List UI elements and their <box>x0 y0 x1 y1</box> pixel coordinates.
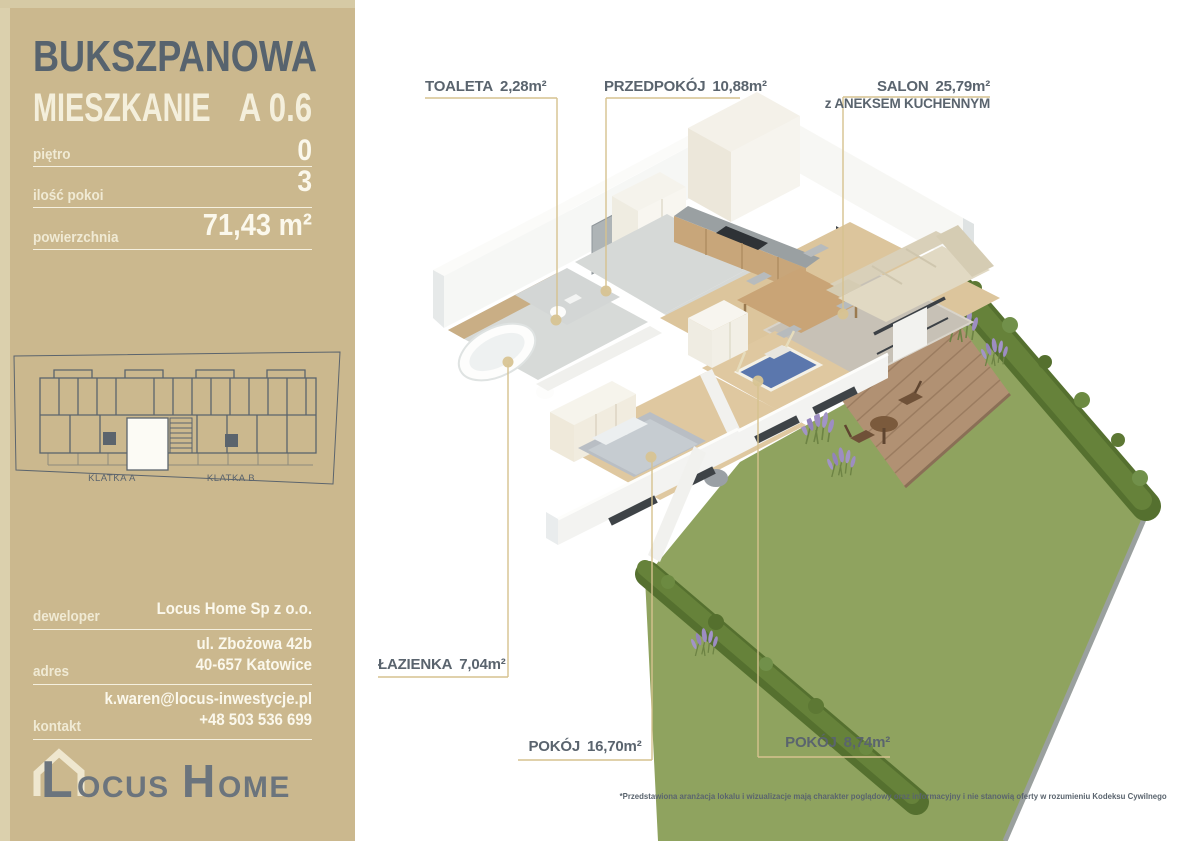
leader-toaleta <box>425 98 557 318</box>
room-area: 16,70m² <box>587 738 641 755</box>
salon-main-line: SALON25,79m² <box>790 78 990 95</box>
leader-dot-lazienka <box>503 357 514 368</box>
room-name: SALON <box>877 78 929 95</box>
room-area: 7,04m² <box>459 656 505 673</box>
room-area: 8,74m² <box>844 734 890 751</box>
room-label-pokoj-16: POKÓJ16,70m² <box>518 738 652 755</box>
salon-sub-line: z ANEKSEM KUCHENNYM <box>790 96 990 111</box>
room-label-toaleta: TOALETA2,28m² <box>425 78 546 95</box>
room-label-salon: SALON25,79m² z ANEKSEM KUCHENNYM <box>790 78 990 111</box>
leader-dot-toaleta <box>551 315 562 326</box>
room-name: TOALETA <box>425 78 493 95</box>
room-label-przedpokoj: PRZEDPOKÓJ10,88m² <box>604 78 740 95</box>
leader-pokoj1 <box>518 459 652 760</box>
leader-lines <box>0 0 1190 841</box>
room-name: POKÓJ <box>529 738 581 755</box>
leader-salon <box>843 97 990 311</box>
leader-dot-przedpokoj <box>601 286 612 297</box>
leader-dot-pokoj1 <box>646 452 657 463</box>
room-area: 2,28m² <box>500 78 546 95</box>
leader-dot-salon <box>838 309 849 320</box>
room-name: ŁAZIENKA <box>378 656 452 673</box>
leader-przedpokoj <box>606 98 740 289</box>
leader-lazienka <box>378 364 508 677</box>
legal-disclaimer: *Przedstawiona aranżacja lokalu i wizual… <box>620 791 1167 801</box>
room-label-pokoj-8: POKÓJ8,74m² <box>758 734 890 751</box>
room-name: PRZEDPOKÓJ <box>604 78 705 95</box>
room-name: POKÓJ <box>785 734 837 751</box>
room-area: 25,79m² <box>936 78 990 95</box>
leader-pokoj2 <box>758 383 890 757</box>
room-area: 10,88m² <box>712 78 766 95</box>
room-label-lazienka: ŁAZIENKA7,04m² <box>378 656 506 673</box>
leader-dot-pokoj2 <box>753 376 764 387</box>
